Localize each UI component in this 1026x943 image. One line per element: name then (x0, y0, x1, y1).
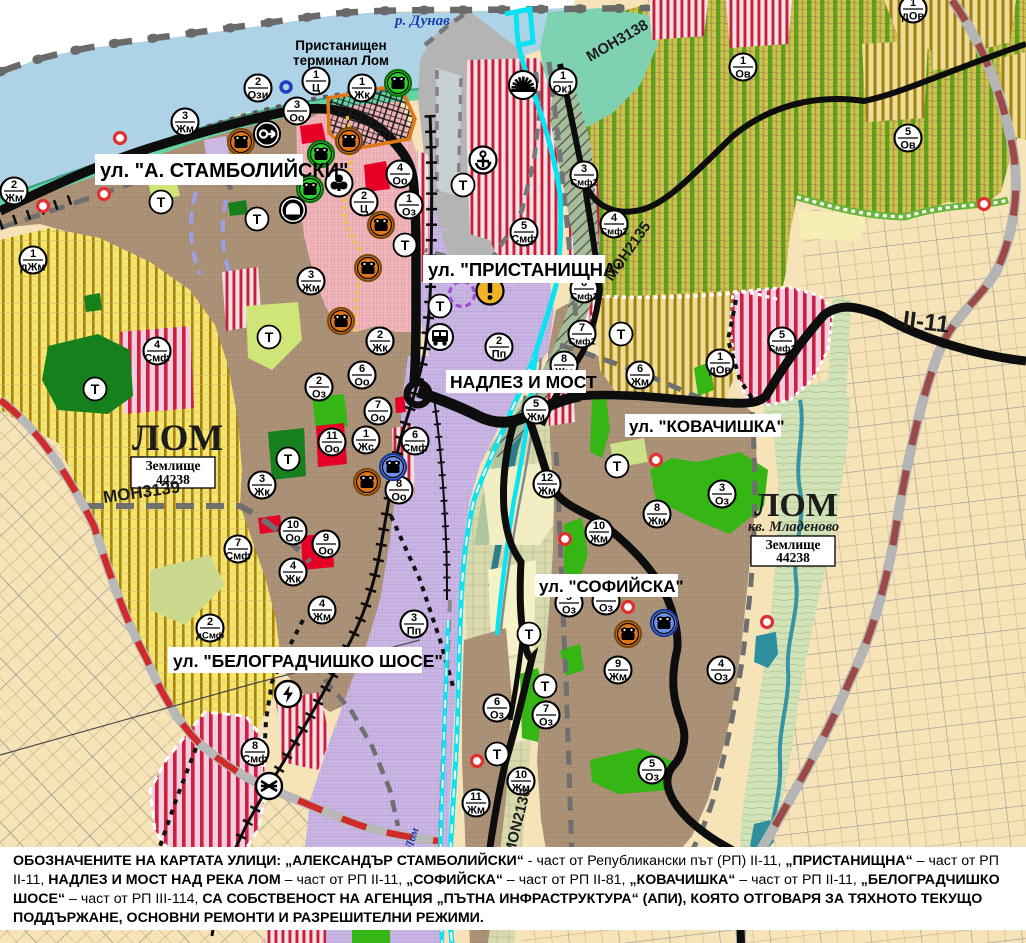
svg-text:Т: Т (436, 298, 445, 314)
svg-text:Оз: Оз (312, 389, 327, 401)
svg-text:5: 5 (533, 398, 539, 410)
svg-text:7: 7 (375, 399, 381, 411)
svg-text:Пристанищен: Пристанищен (295, 38, 386, 53)
svg-text:Оо: Оо (391, 492, 407, 504)
svg-text:3: 3 (308, 269, 314, 281)
svg-text:Жс: Жс (357, 442, 374, 454)
svg-text:5: 5 (521, 220, 527, 232)
svg-text:Жк: Жк (284, 574, 301, 586)
svg-text:7: 7 (235, 537, 241, 549)
svg-text:1: 1 (910, 0, 916, 9)
svg-text:2: 2 (316, 375, 322, 387)
svg-text:Жк: Жк (353, 90, 370, 102)
svg-text:Жм: Жм (647, 516, 666, 528)
svg-text:Смф: Смф (225, 551, 251, 563)
svg-text:Жк: Жк (371, 343, 388, 355)
svg-text:4: 4 (290, 560, 297, 572)
svg-text:1: 1 (363, 428, 369, 440)
svg-text:Оо: Оо (370, 413, 386, 425)
svg-text:Оо: Оо (324, 444, 340, 456)
svg-text:2: 2 (496, 335, 502, 347)
svg-text:Землище: Землище (145, 458, 200, 473)
svg-text:Жм: Жм (175, 124, 194, 136)
svg-text:Т: Т (265, 329, 274, 345)
svg-text:ул. "БЕЛОГРАДЧИШКО ШОСЕ": ул. "БЕЛОГРАДЧИШКО ШОСЕ" (173, 651, 443, 671)
svg-text:Оо: Оо (318, 546, 334, 558)
svg-text:Оо: Оо (285, 533, 301, 545)
svg-text:дОв: дОв (902, 11, 925, 23)
svg-text:Т: Т (253, 211, 262, 227)
svg-text:Пп: Пп (492, 349, 507, 361)
svg-text:Т: Т (541, 678, 550, 694)
svg-text:р. Дунав: р. Дунав (393, 13, 450, 29)
svg-text:Т: Т (617, 326, 626, 342)
svg-text:1: 1 (717, 351, 723, 363)
svg-text:44238: 44238 (776, 550, 810, 565)
svg-text:8: 8 (252, 740, 258, 752)
svg-text:Ц: Ц (312, 83, 320, 95)
svg-text:1: 1 (740, 55, 746, 67)
svg-text:7: 7 (579, 322, 585, 334)
svg-text:3: 3 (259, 473, 265, 485)
svg-text:кв. Младеново: кв. Младеново (748, 519, 839, 535)
svg-text:Т: Т (284, 451, 293, 467)
svg-text:Смф1: Смф1 (570, 178, 598, 189)
svg-text:ул. "СОФИЙСКА": ул. "СОФИЙСКА" (539, 577, 684, 596)
svg-text:Т: Т (525, 626, 534, 642)
svg-text:Оо: Оо (392, 176, 408, 188)
svg-text:3: 3 (581, 163, 587, 175)
svg-text:Жм: Жм (466, 805, 485, 817)
svg-text:6: 6 (412, 429, 418, 441)
svg-text:Жм: Жм (608, 672, 627, 684)
svg-text:Смф1: Смф1 (570, 292, 598, 303)
svg-text:10: 10 (515, 769, 527, 781)
svg-text:4: 4 (718, 658, 725, 670)
svg-text:Смф1: Смф1 (600, 227, 628, 238)
svg-text:Смф: Смф (402, 443, 428, 455)
svg-text:1: 1 (359, 76, 365, 88)
svg-text:7: 7 (543, 703, 549, 715)
svg-text:3: 3 (294, 99, 300, 111)
svg-text:3: 3 (719, 482, 725, 494)
svg-text:Смф: Смф (144, 353, 170, 365)
svg-text:Оз: Оз (645, 772, 660, 784)
svg-text:1: 1 (313, 69, 319, 81)
svg-text:11: 11 (326, 430, 338, 442)
svg-text:Жм: Жм (630, 377, 649, 389)
svg-text:Т: Т (493, 746, 502, 762)
svg-text:НАДЛЕЗ И МОСТ: НАДЛЕЗ И МОСТ (450, 372, 597, 392)
svg-text:ул. "КОВАЧИШКА": ул. "КОВАЧИШКА" (629, 417, 785, 436)
svg-text:терминал Лом: терминал Лом (293, 53, 389, 68)
svg-text:Смф1: Смф1 (568, 337, 596, 348)
svg-text:Оз: Оз (539, 717, 554, 729)
svg-text:Жм: Жм (4, 193, 23, 205)
svg-text:6: 6 (494, 696, 500, 708)
svg-text:Пп: Пп (407, 626, 422, 638)
svg-text:Оо: Оо (289, 113, 305, 125)
svg-text:ЛОМ: ЛОМ (132, 418, 223, 459)
svg-text:дОв: дОв (709, 365, 732, 377)
svg-text:Оз: Оз (599, 603, 614, 615)
svg-text:Оз: Оз (562, 605, 577, 617)
svg-text:Ов: Ов (735, 69, 751, 81)
svg-text:2: 2 (361, 190, 367, 202)
svg-text:Ок1: Ок1 (553, 84, 573, 96)
svg-text:Т: Т (613, 458, 622, 474)
svg-text:дЖм: дЖм (20, 262, 45, 274)
svg-text:4: 4 (397, 162, 404, 174)
svg-text:5: 5 (905, 126, 911, 138)
svg-text:Оо: Оо (354, 377, 370, 389)
svg-text:11: 11 (470, 791, 482, 803)
svg-text:4: 4 (611, 212, 618, 224)
svg-text:Т: Т (91, 381, 100, 397)
svg-text:ул. "ПРИСТАНИЩНА": ул. "ПРИСТАНИЩНА" (428, 259, 625, 280)
svg-text:8: 8 (561, 353, 567, 365)
svg-text:9: 9 (323, 532, 329, 544)
svg-text:Жм: Жм (589, 534, 608, 546)
svg-text:10: 10 (593, 520, 605, 532)
svg-text:8: 8 (654, 502, 660, 514)
svg-text:2: 2 (377, 329, 383, 341)
svg-text:Ов: Ов (900, 140, 916, 152)
svg-text:2: 2 (255, 76, 261, 88)
svg-text:Смф1: Смф1 (768, 344, 796, 355)
svg-text:Жк: Жк (253, 487, 270, 499)
svg-text:Оз: Оз (490, 710, 505, 722)
svg-text:Смф: Смф (242, 754, 268, 766)
svg-text:Ози: Ози (248, 90, 269, 102)
svg-text:2: 2 (11, 179, 17, 191)
svg-text:4: 4 (154, 339, 161, 351)
svg-text:1: 1 (560, 70, 566, 82)
svg-text:1: 1 (30, 248, 36, 260)
svg-text:Т: Т (157, 194, 166, 210)
svg-text:Т: Т (459, 177, 468, 193)
svg-text:4: 4 (319, 598, 326, 610)
svg-text:Оз: Оз (715, 496, 730, 508)
svg-text:5: 5 (649, 758, 655, 770)
svg-text:2: 2 (207, 616, 213, 628)
svg-text:12: 12 (541, 472, 553, 484)
svg-text:ул. "А. СТАМБОЛИЙСКИ": ул. "А. СТАМБОЛИЙСКИ" (100, 158, 348, 182)
svg-text:Оз: Оз (714, 672, 729, 684)
svg-text:Жм: Жм (312, 612, 331, 624)
svg-text:5: 5 (779, 329, 785, 341)
svg-text:Жм: Жм (537, 486, 556, 498)
svg-text:6: 6 (359, 363, 365, 375)
svg-text:3: 3 (182, 110, 188, 122)
svg-text:II-11: II-11 (901, 306, 951, 338)
svg-text:Ц: Ц (360, 204, 368, 216)
svg-text:3: 3 (411, 612, 417, 624)
svg-text:1: 1 (406, 193, 412, 205)
svg-text:Т: Т (401, 237, 410, 253)
svg-text:10: 10 (287, 519, 299, 531)
svg-text:Смф: Смф (511, 234, 537, 246)
svg-text:Жм: Жм (301, 283, 320, 295)
svg-text:дСмф: дСмф (196, 631, 224, 642)
svg-text:9: 9 (615, 658, 621, 670)
svg-text:Оз: Оз (402, 207, 417, 219)
svg-text:Жм: Жм (526, 412, 545, 424)
svg-text:6: 6 (637, 363, 643, 375)
